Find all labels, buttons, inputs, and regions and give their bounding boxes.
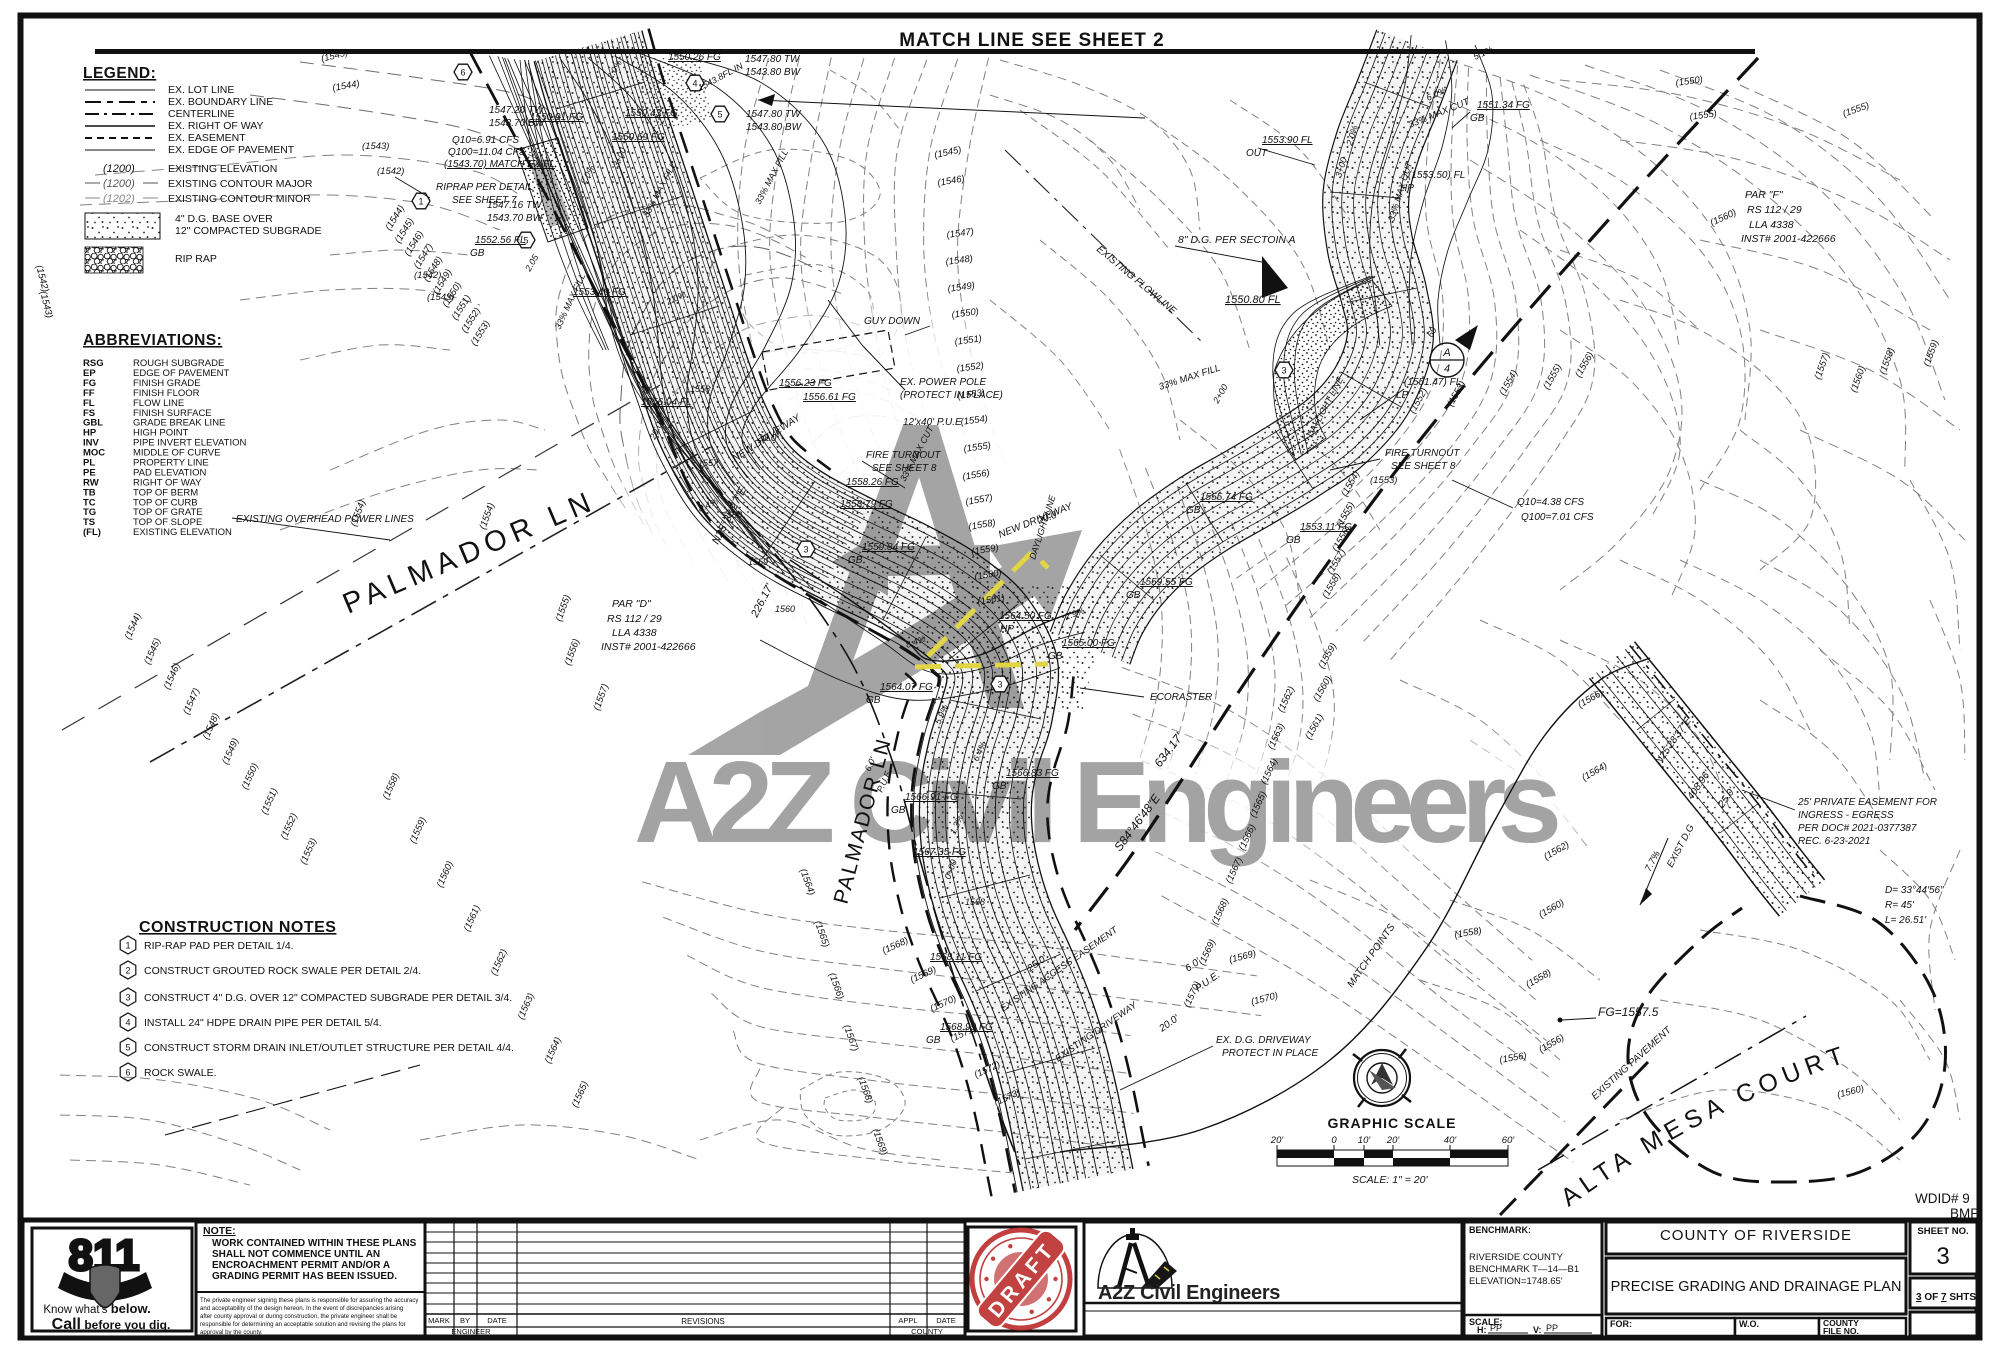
svg-text:(PROTECT IN PLACE): (PROTECT IN PLACE) (900, 390, 1003, 401)
svg-text:NOTE:: NOTE: (203, 1225, 236, 1237)
svg-text:(1553): (1553) (1370, 475, 1397, 486)
svg-text:40': 40' (1444, 1135, 1458, 1146)
svg-text:INGRESS - EGRESS: INGRESS - EGRESS (1798, 810, 1894, 821)
svg-text:W.O.: W.O. (1739, 1319, 1759, 1329)
svg-text:RIP RAP: RIP RAP (175, 253, 217, 265)
svg-text:EXISTING ELEVATION: EXISTING ELEVATION (133, 527, 232, 538)
svg-text:FIRE TURNOUT: FIRE TURNOUT (866, 450, 941, 461)
svg-text:FIRE TURNOUT: FIRE TURNOUT (1385, 448, 1460, 459)
svg-text:EX. D.G. DRIVEWAY: EX. D.G. DRIVEWAY (1216, 1035, 1312, 1046)
svg-text:PAR "D": PAR "D" (612, 598, 652, 610)
svg-text:12" COMPACTED SUBGRADE: 12" COMPACTED SUBGRADE (175, 225, 321, 237)
svg-text:8" D.G. PER SECTOIN A: 8" D.G. PER SECTOIN A (1178, 234, 1296, 246)
svg-text:CONSTRUCTION NOTES: CONSTRUCTION NOTES (139, 919, 336, 936)
svg-text:1556.04 FL: 1556.04 FL (641, 397, 692, 408)
svg-text:LLA 4338: LLA 4338 (612, 627, 657, 639)
svg-text:1559.84 FG: 1559.84 FG (862, 542, 915, 553)
svg-text:INSTALL 24" HDPE DRAIN PIPE PE: INSTALL 24" HDPE DRAIN PIPE PER DETAIL 5… (144, 1017, 382, 1029)
svg-text:after county approval or durin: after county approval or during construc… (200, 1313, 398, 1320)
svg-text:BENCHMARK:: BENCHMARK: (1469, 1225, 1531, 1235)
svg-text:responsible for determining an: responsible for determining an acceptabl… (200, 1321, 406, 1328)
svg-text:FOR:: FOR: (1610, 1319, 1632, 1329)
svg-text:4: 4 (125, 1018, 130, 1028)
svg-text:RIVERSIDE COUNTY: RIVERSIDE COUNTY (1469, 1252, 1564, 1263)
svg-text:REVISIONS: REVISIONS (681, 1317, 725, 1326)
svg-text:1558.26 FG: 1558.26 FG (846, 477, 899, 488)
svg-text:INST# 2001-422666: INST# 2001-422666 (1741, 233, 1836, 245)
svg-text:and acceptability of the desig: and acceptability of the design hereon. … (200, 1305, 403, 1312)
svg-text:DATE: DATE (487, 1316, 506, 1325)
svg-text:1558.79 FG: 1558.79 FG (840, 499, 893, 510)
svg-text:1550.69 FG: 1550.69 FG (612, 132, 665, 143)
svg-text:SEE SHEET 8: SEE SHEET 8 (1391, 461, 1456, 472)
svg-text:GB: GB (848, 555, 863, 566)
svg-text:Q100=7.01 CFS: Q100=7.01 CFS (1521, 512, 1594, 523)
svg-text:1560: 1560 (775, 604, 795, 614)
svg-text:1547.80 TW: 1547.80 TW (746, 109, 802, 120)
svg-text:1551.34 FG: 1551.34 FG (1477, 100, 1530, 111)
svg-text:(1543.70) MATCH EX FL: (1543.70) MATCH EX FL (444, 159, 555, 170)
svg-text:(1200): (1200) (103, 178, 135, 190)
svg-text:6: 6 (125, 1068, 130, 1078)
svg-text:REC. 6-23-2021: REC. 6-23-2021 (1798, 836, 1870, 847)
svg-text:GB: GB (891, 805, 906, 816)
svg-text:ECORASTER: ECORASTER (1150, 692, 1212, 703)
svg-text:20': 20' (1386, 1135, 1401, 1146)
svg-text:V:: V: (1533, 1325, 1542, 1335)
svg-text:GB: GB (1126, 590, 1141, 601)
svg-text:EXISTING CONTOUR MINOR: EXISTING CONTOUR MINOR (168, 193, 311, 205)
svg-text:1550.43 FG: 1550.43 FG (625, 108, 678, 119)
svg-text:1556: 1556 (690, 384, 710, 394)
svg-text:3: 3 (1281, 366, 1286, 376)
svg-text:6: 6 (460, 68, 465, 78)
svg-text:5: 5 (125, 1043, 130, 1053)
svg-text:0: 0 (1331, 1135, 1337, 1146)
svg-text:RIPRAP PER DETAIL: RIPRAP PER DETAIL (436, 182, 533, 193)
svg-text:1552.56 FL: 1552.56 FL (475, 235, 526, 246)
svg-text:Call before you dig.: Call before you dig. (52, 1316, 171, 1333)
svg-text:EXISTING OVERHEAD POWER LINES: EXISTING OVERHEAD POWER LINES (236, 514, 414, 525)
svg-text:CONSTRUCT STORM DRAIN INLET/OU: CONSTRUCT STORM DRAIN INLET/OUTLET STRUC… (144, 1042, 514, 1054)
svg-text:1553.90 FL: 1553.90 FL (1262, 135, 1313, 146)
svg-text:1553.11 FG: 1553.11 FG (1300, 522, 1352, 533)
svg-text:BY: BY (460, 1316, 470, 1325)
svg-text:1543.80 BW: 1543.80 BW (746, 122, 803, 133)
svg-text:4: 4 (1444, 363, 1450, 375)
svg-text:MARK: MARK (428, 1316, 450, 1325)
svg-text:PP: PP (1546, 1323, 1558, 1333)
svg-text:(1200): (1200) (103, 163, 135, 175)
svg-text:PP: PP (1490, 1323, 1502, 1333)
svg-text:CONSTRUCT GROUTED ROCK SWALE P: CONSTRUCT GROUTED ROCK SWALE PER DETAIL … (144, 965, 421, 977)
svg-text:The private engineer signing t: The private engineer signing these plans… (200, 1297, 419, 1304)
svg-text:60': 60' (1502, 1135, 1516, 1146)
svg-text:RS 112 / 29: RS 112 / 29 (1747, 204, 1802, 216)
svg-text:1568: 1568 (965, 897, 985, 907)
svg-text:RIP-RAP PAD PER DETAIL 1/4.: RIP-RAP PAD PER DETAIL 1/4. (144, 940, 294, 952)
svg-text:10': 10' (1358, 1135, 1372, 1146)
svg-text:SEE SHEET 7: SEE SHEET 7 (452, 195, 517, 206)
svg-text:HP: HP (1000, 624, 1014, 635)
svg-text:GB: GB (1048, 651, 1063, 662)
svg-text:ENGINEER: ENGINEER (451, 1327, 491, 1336)
svg-text:1559.55 FG: 1559.55 FG (1140, 577, 1193, 588)
svg-text:Q10=4.38 CFS: Q10=4.38 CFS (1517, 497, 1584, 508)
svg-text:CENTERLINE: CENTERLINE (168, 108, 235, 120)
svg-text:R= 45': R= 45' (1885, 900, 1915, 911)
svg-text:(1542): (1542) (377, 166, 404, 177)
svg-text:25' PRIVATE EASEMENT FOR: 25' PRIVATE EASEMENT FOR (1797, 797, 1937, 808)
svg-text:EX. EASEMENT: EX. EASEMENT (168, 132, 246, 144)
svg-text:DATE: DATE (936, 1316, 955, 1325)
svg-text:GB: GB (926, 1035, 941, 1046)
svg-text:1547.80 TW: 1547.80 TW (745, 54, 801, 65)
svg-text:PRECISE GRADING AND DRAINAG: PRECISE GRADING AND DRAINAGE PLAN (1611, 1279, 1902, 1295)
svg-text:20': 20' (1270, 1135, 1285, 1146)
svg-text:1543.70 BW: 1543.70 BW (487, 213, 544, 224)
svg-text:LP: LP (1396, 390, 1409, 401)
svg-text:Know what's below.: Know what's below. (43, 1301, 150, 1316)
svg-text:1566.91 FG: 1566.91 FG (905, 792, 958, 803)
svg-text:3: 3 (997, 680, 1002, 690)
svg-text:EX. BOUNDARY LINE: EX. BOUNDARY LINE (168, 96, 273, 108)
svg-text:1568.99 FG: 1568.99 FG (940, 1022, 993, 1033)
svg-text:PAR "F": PAR "F" (1745, 189, 1784, 201)
svg-text:GB: GB (470, 248, 485, 259)
svg-text:3: 3 (125, 993, 130, 1003)
svg-text:EXISTING ELEVATION: EXISTING ELEVATION (168, 163, 277, 175)
svg-text:3: 3 (1936, 1243, 1949, 1270)
svg-text:COUNTY OF RIVERSIDE: COUNTY OF RIVERSIDE (1660, 1227, 1852, 1244)
svg-text:(1551.47) FL: (1551.47) FL (1404, 377, 1461, 388)
svg-text:1566.83 FG: 1566.83 FG (1006, 768, 1059, 779)
svg-text:3 OF 7 SHTS: 3 OF 7 SHTS (1916, 1292, 1976, 1303)
svg-text:1568.11 FG: 1568.11 FG (930, 952, 982, 963)
svg-text:(FL): (FL) (83, 527, 101, 538)
svg-text:COUNTY: COUNTY (911, 1327, 943, 1336)
svg-text:1567.35 FG: 1567.35 FG (913, 847, 966, 858)
svg-text:FG=1557.5: FG=1557.5 (1598, 1005, 1659, 1019)
svg-text:1557: 1557 (698, 458, 719, 468)
svg-text:(1553.50) FL: (1553.50) FL (1408, 170, 1465, 181)
svg-text:PROTECT IN PLACE: PROTECT IN PLACE (1222, 1048, 1318, 1059)
svg-text:GB: GB (1286, 535, 1301, 546)
svg-text:SHEET NO.: SHEET NO. (1917, 1226, 1968, 1237)
svg-text:2: 2 (125, 966, 130, 976)
svg-text:LLA 4338: LLA 4338 (1749, 219, 1794, 231)
svg-text:approval by the county.: approval by the county. (200, 1329, 263, 1336)
svg-text:EXISTING CONTOUR MAJOR: EXISTING CONTOUR MAJOR (168, 178, 313, 190)
svg-text:1550.80 FL: 1550.80 FL (1225, 294, 1281, 306)
svg-text:GB: GB (1186, 505, 1201, 516)
svg-text:ELEVATION=1748.65': ELEVATION=1748.65' (1469, 1276, 1563, 1287)
svg-text:MATCH LINE SEE SHEET 2: MATCH LINE SEE SHEET 2 (899, 30, 1165, 51)
svg-text:A2Z Civil Engineers: A2Z Civil Engineers (1098, 1282, 1280, 1304)
svg-text:1: 1 (125, 941, 130, 951)
svg-text:GB: GB (992, 781, 1007, 792)
svg-text:12'x40' P.U.E: 12'x40' P.U.E (903, 417, 962, 428)
svg-text:L= 26.51': L= 26.51' (1885, 915, 1927, 926)
svg-text:WORK CONTAINED WITHIN THESE PL: WORK CONTAINED WITHIN THESE PLANS (212, 1238, 417, 1249)
svg-text:A2Z Civil Engineers: A2Z Civil Engineers (634, 737, 1562, 867)
svg-text:GRADING PERMIT HAS BEEN ISSUED: GRADING PERMIT HAS BEEN ISSUED. (212, 1271, 397, 1282)
svg-text:3: 3 (803, 545, 808, 555)
svg-text:GRAPHIC SCALE: GRAPHIC SCALE (1328, 1115, 1457, 1131)
svg-text:1550.91 FG: 1550.91 FG (530, 112, 583, 123)
svg-text:BENCHMARK T—14—B1: BENCHMARK T—14—B1 (1469, 1264, 1579, 1275)
svg-text:(1543): (1543) (362, 141, 389, 152)
svg-text:Q10=6.91 CFS: Q10=6.91 CFS (452, 135, 519, 146)
svg-text:1: 1 (418, 197, 423, 207)
svg-text:GB: GB (1470, 113, 1485, 124)
svg-text:1564.07 FG: 1564.07 FG (880, 682, 933, 693)
svg-text:Q100=11.04 CFS: Q100=11.04 CFS (448, 147, 526, 158)
svg-text:ROCK SWALE.: ROCK SWALE. (144, 1067, 217, 1079)
svg-text:APPL: APPL (898, 1316, 917, 1325)
svg-text:EX. POWER POLE: EX. POWER POLE (900, 377, 986, 388)
svg-text:FILE NO.: FILE NO. (1823, 1326, 1859, 1336)
svg-text:5: 5 (717, 110, 722, 120)
svg-text:ABBREVIATIONS:: ABBREVIATIONS: (83, 332, 222, 349)
svg-text:H:: H: (1477, 1325, 1487, 1335)
svg-text:ENCROACHMENT PERMIT AND/OR A: ENCROACHMENT PERMIT AND/OR A (212, 1260, 390, 1271)
svg-text:CONSTRUCT 4" D.G. OVER 12" COM: CONSTRUCT 4" D.G. OVER 12" COMPACTED SUB… (144, 992, 512, 1004)
svg-text:1555.74 FG: 1555.74 FG (1200, 492, 1253, 503)
svg-text:1565.00 FG: 1565.00 FG (1062, 638, 1115, 649)
svg-text:PER DOC# 2021-0377387: PER DOC# 2021-0377387 (1798, 823, 1917, 834)
svg-text:WDID# 9: WDID# 9 (1915, 1191, 1970, 1206)
svg-text:SCALE: 1" = 20': SCALE: 1" = 20' (1352, 1174, 1428, 1186)
svg-text:LEGEND:: LEGEND: (83, 65, 156, 82)
svg-text:1543.80 BW: 1543.80 BW (745, 67, 802, 78)
svg-text:1556.23 FG: 1556.23 FG (779, 378, 832, 389)
svg-text:1556.61 FG: 1556.61 FG (803, 392, 856, 403)
svg-text:SHALL NOT COMMENCE UNTIL AN: SHALL NOT COMMENCE UNTIL AN (212, 1249, 380, 1260)
svg-text:(1202): (1202) (103, 193, 135, 205)
svg-text:EX. LOT LINE: EX. LOT LINE (168, 84, 234, 96)
svg-text:EX. EDGE OF PAVEMENT: EX. EDGE OF PAVEMENT (168, 144, 295, 156)
svg-text:D= 33°44′56″: D= 33°44′56″ (1885, 885, 1944, 896)
svg-text:GUY DOWN: GUY DOWN (864, 316, 921, 327)
svg-text:1564.50 FG: 1564.50 FG (999, 611, 1052, 622)
svg-text:GB: GB (866, 695, 881, 706)
svg-text:INST# 2001-422666: INST# 2001-422666 (601, 641, 696, 653)
svg-text:RS 112 / 29: RS 112 / 29 (607, 613, 662, 625)
svg-text:EX. RIGHT OF WAY: EX. RIGHT OF WAY (168, 120, 263, 132)
svg-text:4" D.G. BASE OVER: 4" D.G. BASE OVER (175, 213, 273, 225)
svg-text:1559: 1559 (748, 557, 768, 567)
svg-text:A: A (1442, 347, 1450, 359)
